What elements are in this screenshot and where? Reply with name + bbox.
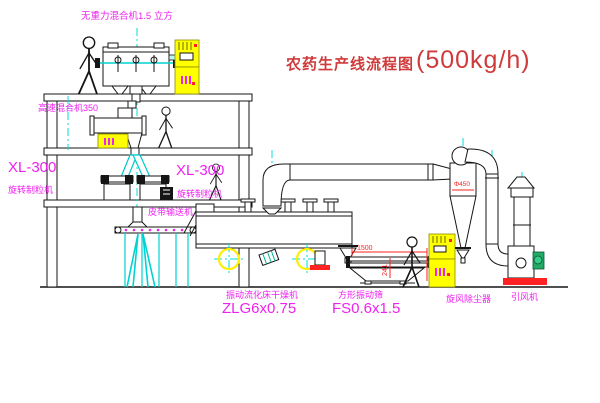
label-granulator-right-name: 旋转制粒机 [177, 190, 222, 199]
label-fan: 引风机 [511, 293, 538, 302]
granulator-right-drawing [137, 175, 173, 200]
control-cabinet-top [175, 40, 199, 94]
title-text: 农药生产线流程图 [286, 53, 414, 74]
label-sieve-name: 方形振动筛 [338, 291, 383, 300]
vibrating-sieve-drawing [346, 248, 432, 284]
dim-sieve-height: 241 [382, 264, 389, 276]
label-granulator-left-model: XL-300 [8, 160, 56, 175]
title-capacity: (500kg/h) [416, 46, 531, 75]
label-granulator-left-name: 旋转制粒机 [8, 186, 53, 195]
label-sieve-model: FS0.6x1.5 [332, 301, 400, 316]
label-dryer-model: ZLG6x0.75 [222, 301, 296, 316]
person-floor2 [159, 107, 173, 148]
label-high-speed-mixer: 高速混合机350 [38, 104, 98, 113]
label-cyclone: 旋风除尘器 [446, 295, 491, 304]
label-granulator-right-model: XL-300 [176, 163, 224, 178]
fan-and-stack-drawing [485, 174, 547, 285]
y-chute-upper [121, 155, 150, 177]
label-belt-conveyor: 皮带输送机 [148, 208, 193, 217]
granulator-left-drawing [101, 175, 133, 200]
person-ground [403, 237, 420, 287]
belt-conveyor-drawing [115, 207, 202, 287]
dim-sieve-length: 1500 [357, 245, 373, 252]
flow-diagram-canvas: 无重力混合机1.5 立方 高速混合机350 XL-300 旋转制粒机 XL-30… [0, 0, 600, 403]
label-cyclone-diameter: Φ450 [454, 182, 470, 189]
label-dryer-name: 振动流化床干燥机 [226, 291, 298, 300]
control-cabinet-right [429, 234, 455, 287]
label-gravity-mixer: 无重力混合机1.5 立方 [81, 12, 173, 22]
diagram-title: 农药生产线流程图 (500kg/h) [286, 46, 531, 75]
